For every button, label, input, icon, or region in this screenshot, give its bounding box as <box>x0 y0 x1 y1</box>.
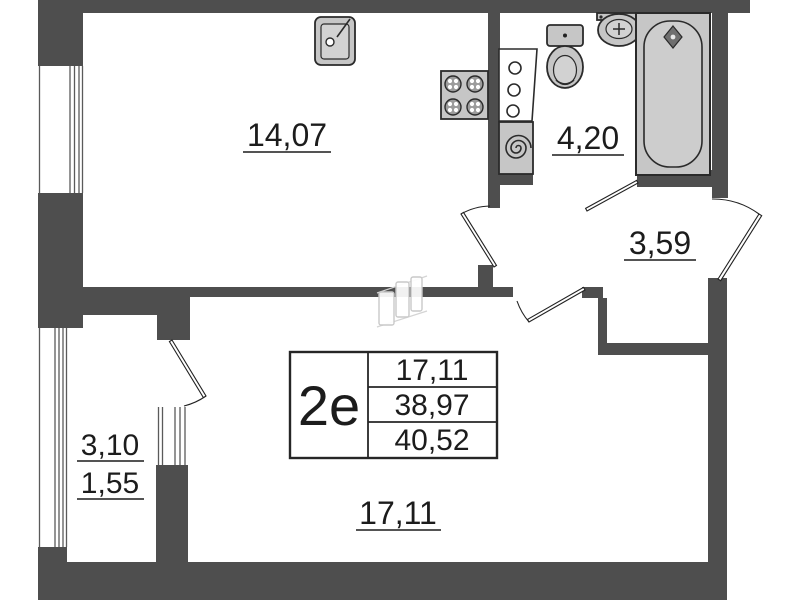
balcony-east-window <box>159 407 186 465</box>
wall-left-pier-mid <box>38 193 83 328</box>
wall-balcony-pier-top <box>157 313 190 340</box>
wall-kitchen-door-stub <box>478 265 493 287</box>
entrance-door-swing-arc <box>712 199 759 214</box>
bathroom-area-label: 4,20 <box>557 120 619 156</box>
bathroom-door-leaf <box>586 180 638 211</box>
kitchen-door-swing-arc <box>461 206 490 214</box>
bathroom-door <box>586 180 638 211</box>
wall-kitchen-south-thick <box>83 297 190 315</box>
hall-living-door <box>517 287 585 322</box>
hall-living-door-leaf <box>528 287 586 322</box>
kitchen-window <box>40 66 83 193</box>
toilet-icon <box>547 25 583 88</box>
balcony-door-leaf <box>169 340 206 398</box>
living-area-label: 17,11 <box>359 495 437 531</box>
wall-hall-west <box>598 298 607 345</box>
table-value-total: 40,52 <box>394 424 469 457</box>
kitchen-area-label: 14,07 <box>247 117 327 153</box>
wall-hall-south <box>598 343 725 355</box>
hall-living-door-swing-arc <box>517 301 529 322</box>
kitchen-door-leaf <box>461 212 497 267</box>
balcony-area-counted-label: 1,55 <box>81 467 139 500</box>
balcony-area-total-label: 3,10 <box>81 429 139 462</box>
kitchen-door <box>461 206 497 267</box>
wall-kitchen-south <box>83 287 513 297</box>
stove-4-burner-icon <box>441 71 488 119</box>
info-table: 2e 17,11 38,97 40,52 <box>290 352 497 458</box>
entrance-door-leaf <box>718 214 762 281</box>
unit-type-label: 2e <box>298 374 360 437</box>
table-value-living: 17,11 <box>396 354 469 387</box>
hall-area-label: 3,59 <box>629 225 691 261</box>
washbasin-icon <box>597 13 641 46</box>
wall-right-lower <box>708 278 727 562</box>
floor-plan-svg: 14,07 4,20 3,59 3,10 1,55 17,11 2e 17,11… <box>0 0 799 600</box>
kitchen-sink-icon <box>315 17 355 65</box>
entrance-door <box>712 199 762 281</box>
balcony-west-window <box>40 328 67 547</box>
balcony-door <box>169 340 206 406</box>
wall-right-upper <box>712 0 728 198</box>
wall-left-pier-top <box>38 0 83 66</box>
bathtub-icon <box>636 13 710 175</box>
cabinet-icon <box>499 49 537 121</box>
wall-balcony-pier-bottom <box>156 465 188 562</box>
sliding-door-icon <box>377 276 427 327</box>
floor-plan: 14,07 4,20 3,59 3,10 1,55 17,11 2e 17,11… <box>0 0 799 600</box>
wall-bottom <box>38 562 727 600</box>
wall-top <box>38 0 750 13</box>
wall-hall-stub <box>582 287 603 298</box>
table-value-area: 38,97 <box>394 389 469 422</box>
washing-machine-icon <box>499 122 533 174</box>
